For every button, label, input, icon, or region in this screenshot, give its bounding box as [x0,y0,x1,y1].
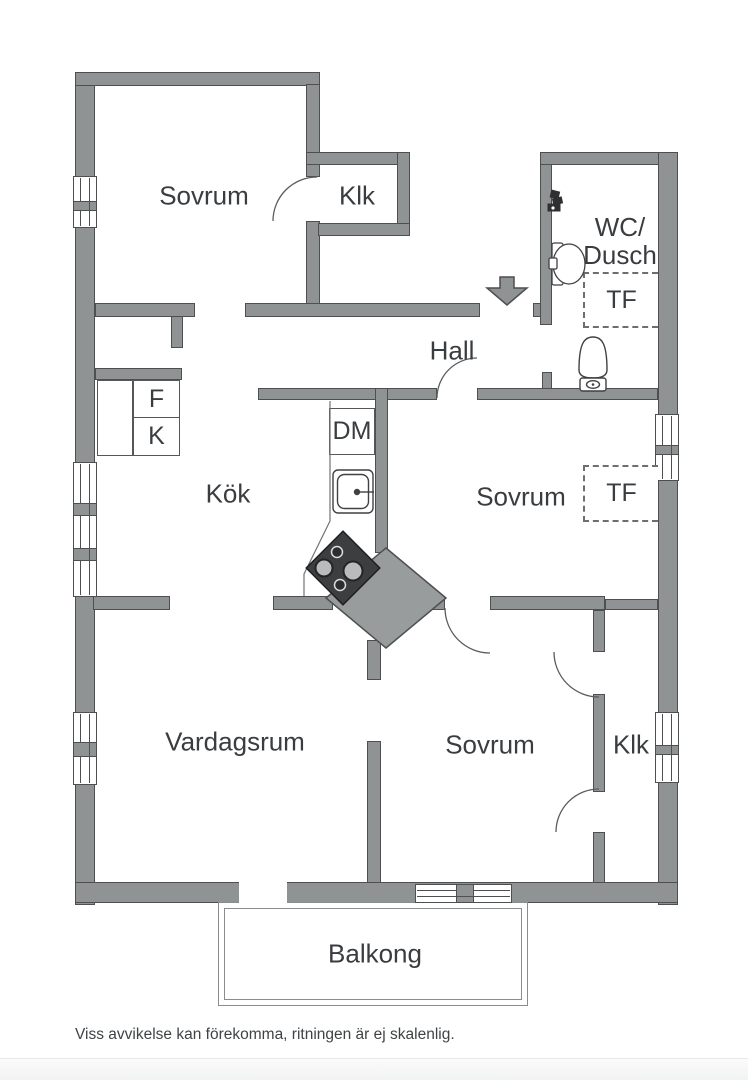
wall-segment [490,596,605,610]
wall-segment [423,596,445,610]
kitchen-sink-icon [333,470,374,513]
room-label-klk-bottom: Klk [613,730,649,761]
room-label-vardagsrum: Vardagsrum [165,727,305,758]
wall-segment [93,596,170,610]
window-divider [655,745,679,755]
window-divider [73,503,97,516]
dishwasher-label: DM [333,417,372,446]
wall-segment [593,832,605,884]
disclaimer-text: Viss avvikelse kan förekomma, ritningen … [75,1026,455,1044]
room-label-klk-top: Klk [339,181,375,212]
toilet-icon [579,337,607,391]
wall-segment [75,882,678,903]
window-divider [655,445,679,455]
room-label-balkong: Balkong [328,939,422,970]
door-swing [273,177,317,221]
wc-line2: Dusch [583,241,657,269]
door-swing [445,608,490,653]
floor-plan-page: F K DM TF TF [0,0,748,1080]
window [73,462,97,597]
wall-segment [367,640,381,680]
kitchen-counter [97,380,133,456]
freezer: K [133,417,180,456]
door-swing [554,652,599,697]
room-label-sovrum-mid: Sovrum [476,482,566,513]
wall-segment [171,316,183,348]
wall-segment [245,303,480,317]
window-divider [73,548,97,561]
wall-segment [540,152,552,325]
window [655,414,679,481]
wall-segment [258,388,437,400]
wall-segment [477,388,658,400]
tf-label: TF [606,479,637,508]
wall-segment [95,303,195,317]
window-divider [73,201,97,211]
room-label-sovrum-bottom: Sovrum [445,730,535,761]
wall-segment [75,72,320,86]
fridge: F [133,380,180,418]
wall-segment [375,388,388,553]
fridge-label: F [149,385,164,414]
wall-segment [367,741,381,884]
dishwasher: DM [329,408,375,455]
window-divider [456,884,474,903]
window [73,176,97,228]
wall-segment [593,610,605,652]
window [655,712,679,783]
wall-segment [273,596,333,610]
wall-segment [306,152,410,165]
cabinet-tf-bedroom: TF [583,465,658,522]
window [73,712,97,785]
balcony-window [415,884,512,903]
cabinet-tf-wc: TF [583,272,658,328]
wall-segment [95,368,182,380]
freezer-label: K [148,422,165,451]
window-divider [73,742,97,757]
counter-edge-line [304,401,330,596]
door-swing [556,789,599,832]
room-label-hall: Hall [430,336,475,367]
wall-segment [593,694,605,792]
balcony-door-opening [239,881,287,904]
room-label-wc-dusch: WC/ Dusch [583,213,657,269]
wall-segment [658,152,678,905]
wall-segment [318,223,410,236]
room-label-sovrum-top: Sovrum [159,181,249,212]
wc-line1: WC/ [583,213,657,241]
entrance-arrow-icon [487,277,527,305]
wall-segment [605,599,658,610]
stove-icon [306,531,380,605]
wash-basin-icon [549,243,585,285]
room-label-kok: Kök [206,479,251,510]
tf-label: TF [606,286,637,315]
footer-band [0,1058,748,1080]
